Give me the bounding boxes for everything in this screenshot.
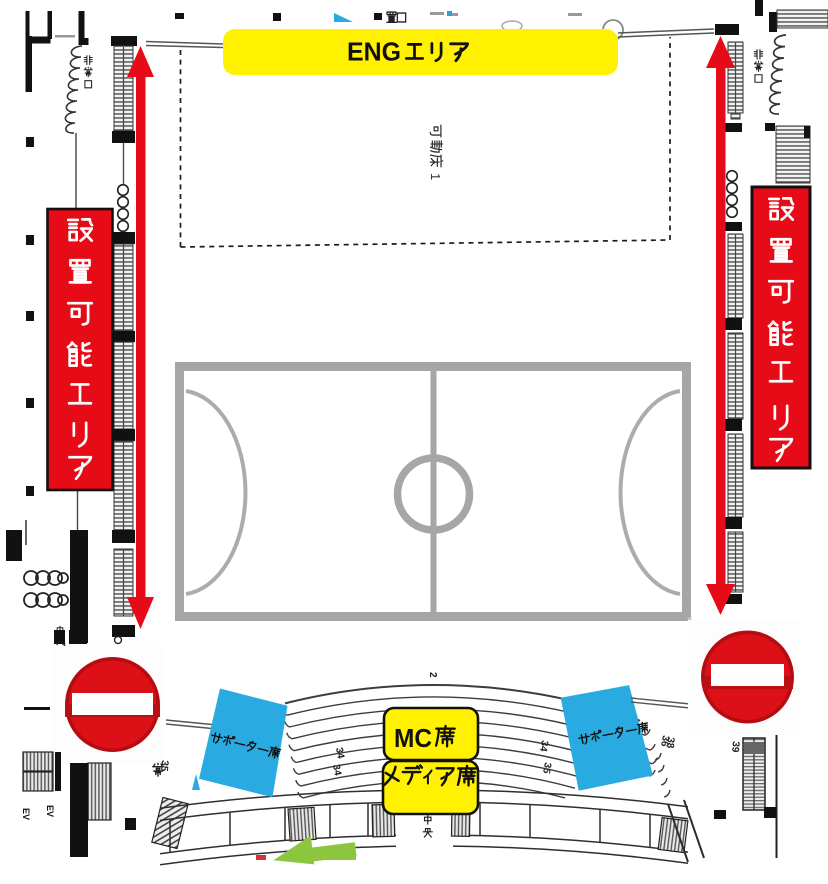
svg-text:2: 2	[427, 672, 438, 678]
svg-text:EV: EV	[45, 805, 55, 817]
svg-text:ENG: ENG	[347, 37, 401, 67]
svg-text:MC: MC	[394, 723, 432, 753]
svg-text:38: 38	[664, 737, 676, 749]
svg-text:35: 35	[158, 760, 170, 772]
svg-text:EV: EV	[21, 808, 31, 820]
svg-text:1: 1	[428, 173, 443, 180]
svg-text:39: 39	[729, 741, 741, 753]
